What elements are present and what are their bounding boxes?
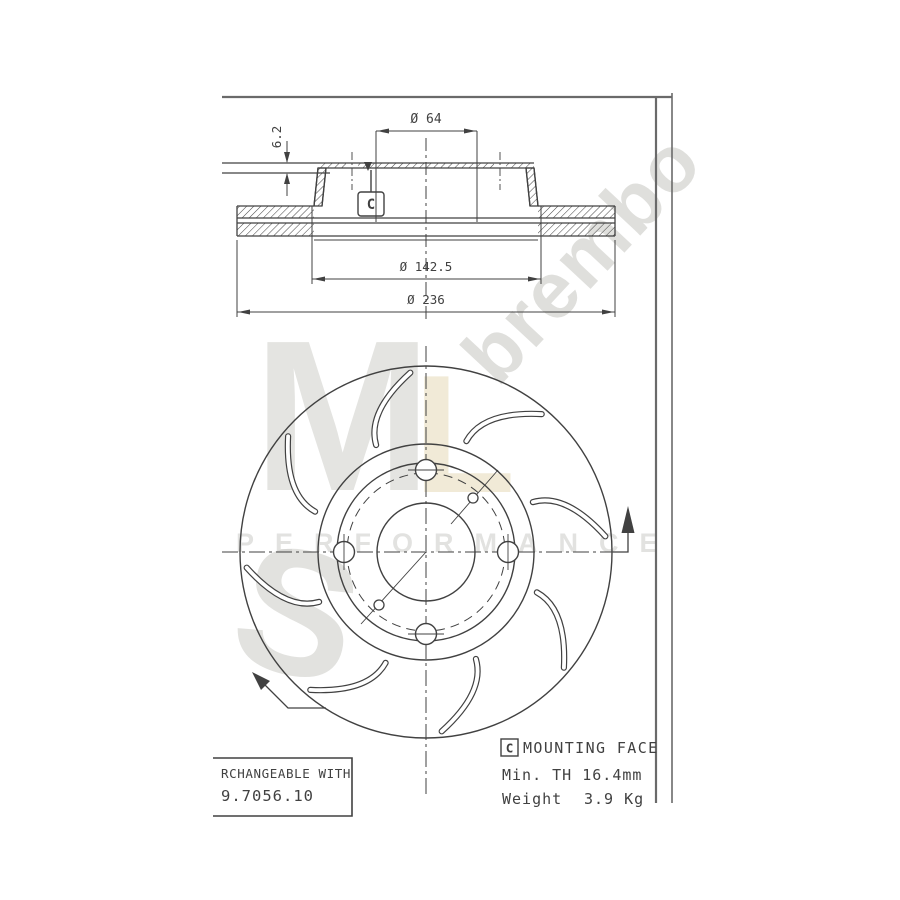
datum-c-label: C [367, 197, 375, 213]
min-thickness-label: Min. TH 16.4mm [502, 766, 642, 784]
technical-drawing: C Ø 64 6.2 Ø 142.5 [0, 0, 900, 900]
mounting-face-label: MOUNTING FACE [523, 739, 659, 757]
mounting-datum-label: C [506, 741, 514, 756]
dim-flange-label: Ø 142.5 [400, 259, 453, 274]
rotation-arrow-right [613, 506, 635, 552]
interchange-part-number: 9.7056.10 [221, 787, 314, 805]
weight-value: 3.9 Kg [584, 790, 644, 808]
dim-bore-label: Ø 64 [410, 112, 441, 127]
dim-step [284, 141, 290, 196]
dim-bore [376, 129, 477, 134]
front-view [222, 346, 635, 797]
product-drawing-image: M L S brembo PERFORMANCE [0, 0, 900, 900]
weight-label: Weight [502, 790, 562, 808]
dim-outer-label: Ø 236 [407, 292, 445, 307]
mounting-face-note: C MOUNTING FACE Min. TH 16.4mm Weight 3.… [501, 739, 659, 808]
interchange-title: RCHANGEABLE WITH [221, 766, 351, 781]
dim-step-label: 6.2 [269, 126, 284, 149]
